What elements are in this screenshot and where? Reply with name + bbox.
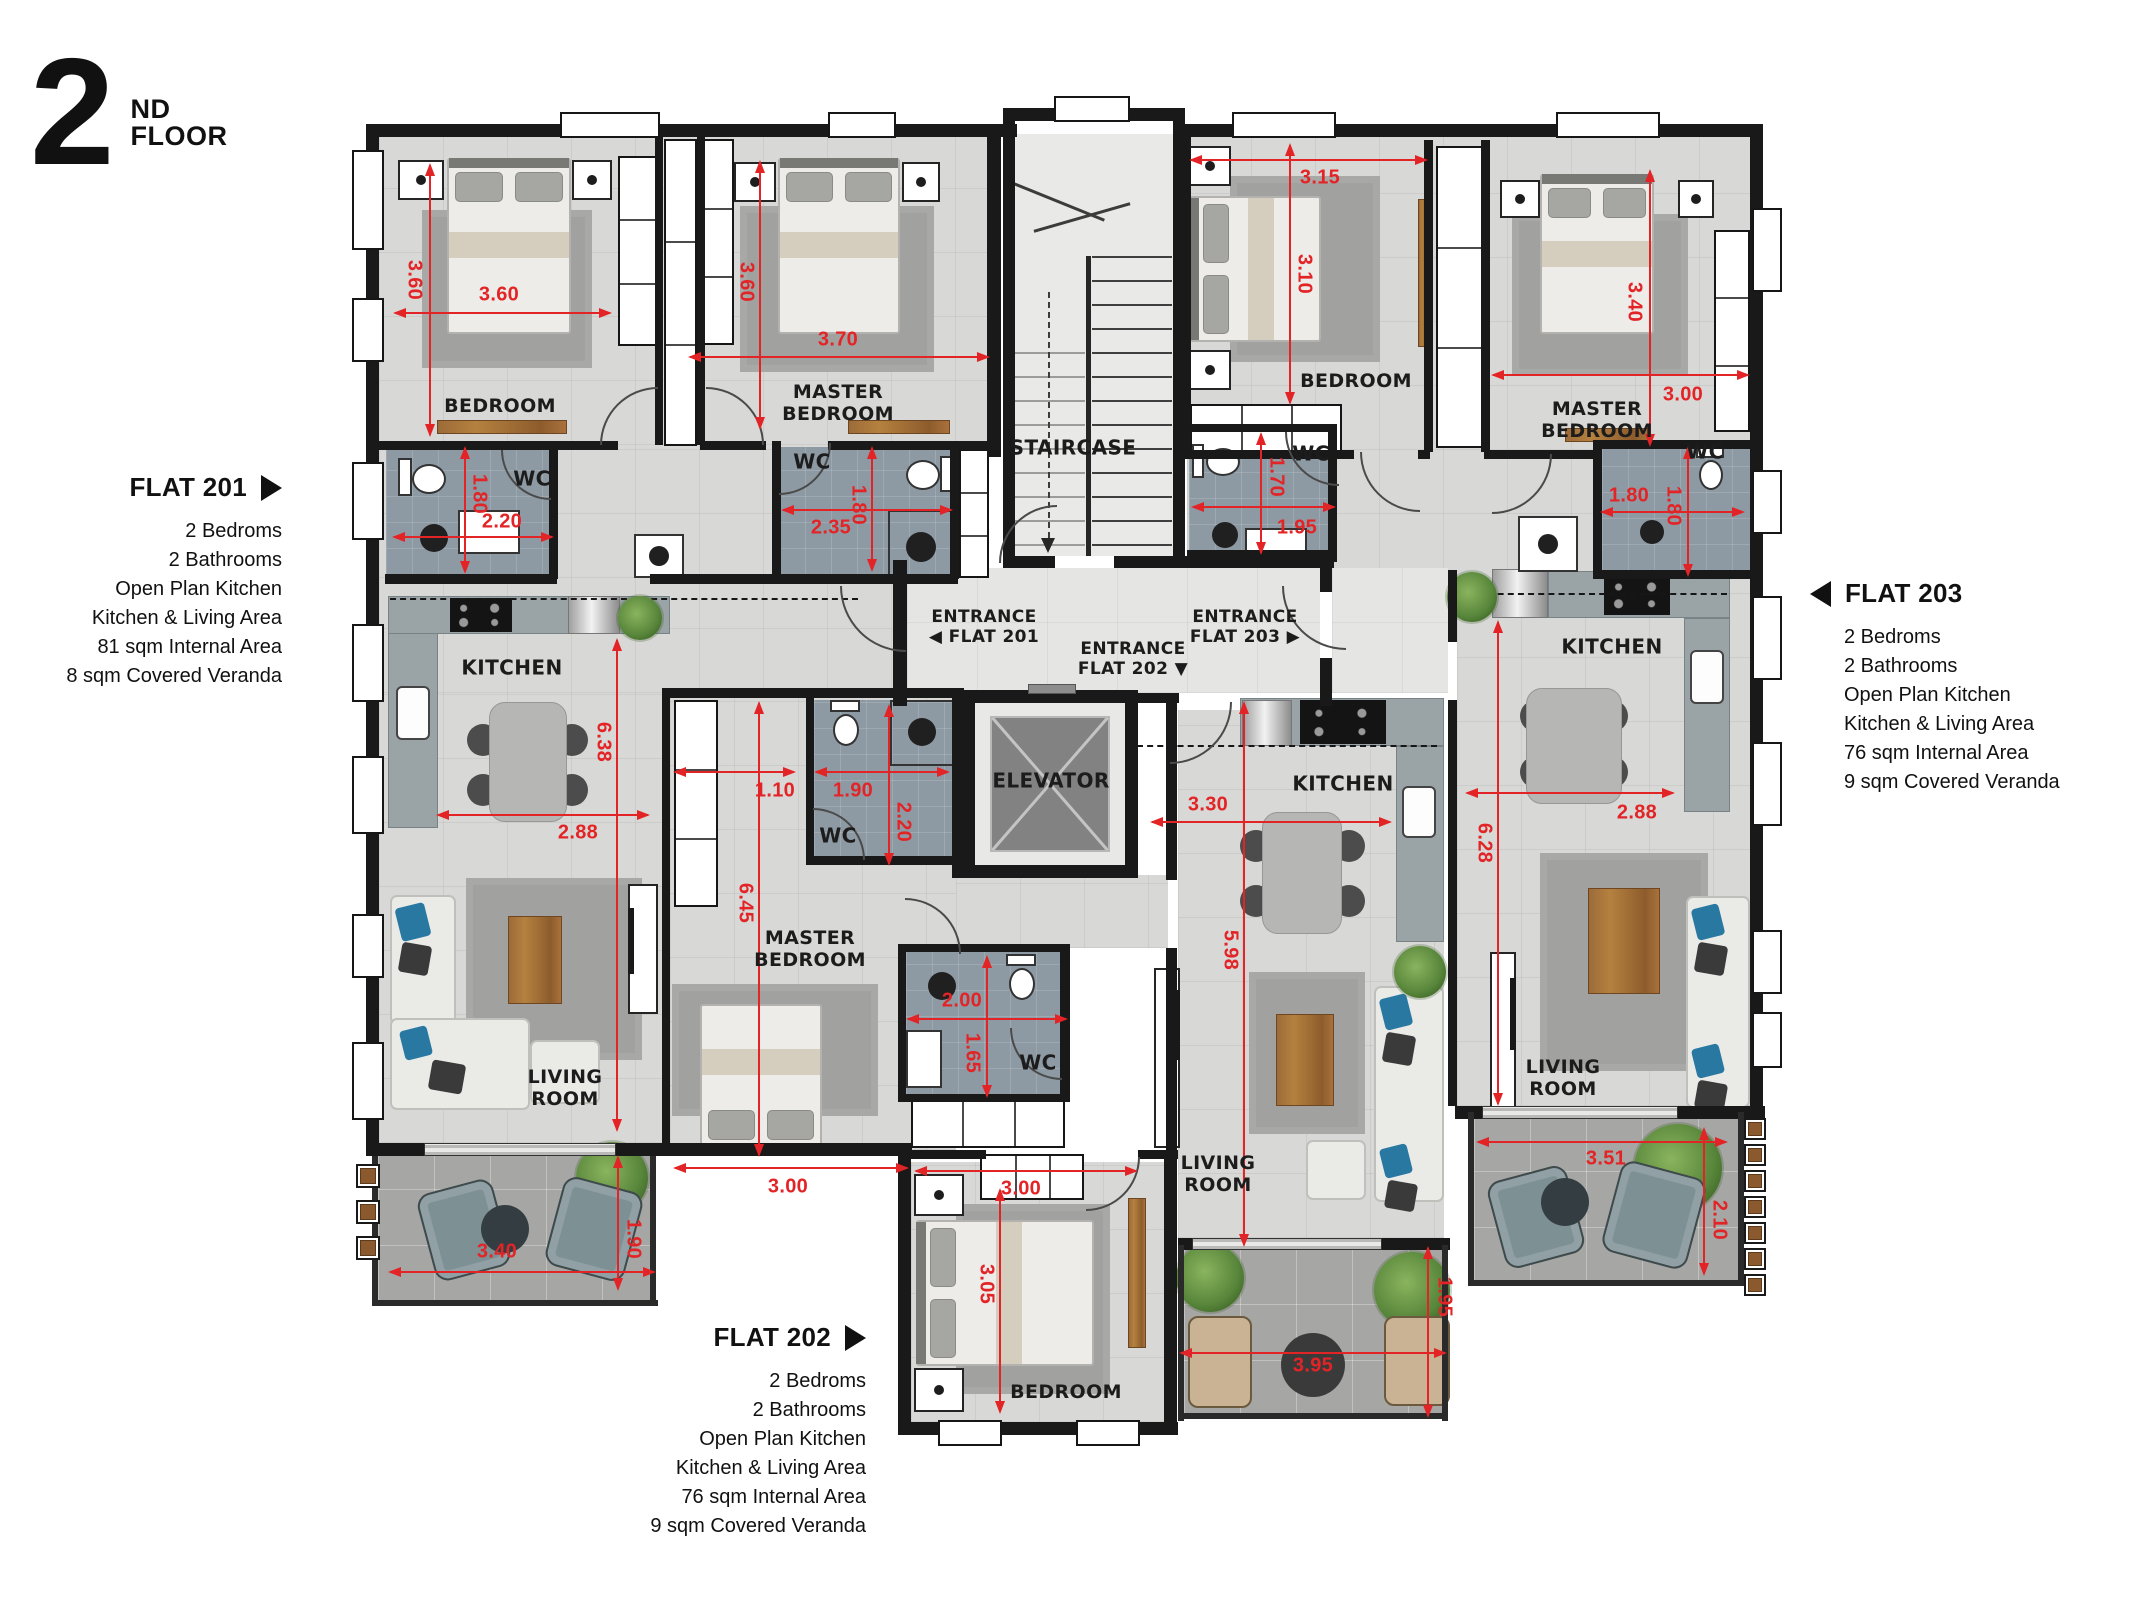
dimension-arrow-icon	[388, 1267, 401, 1277]
dimension-arrow-icon	[1715, 1137, 1728, 1147]
planter-soil	[360, 1168, 376, 1184]
room-label: LIVINGROOM	[1181, 1152, 1256, 1196]
bed-pillow	[708, 1110, 755, 1140]
nightstand-knob	[1205, 365, 1215, 375]
closet-divider	[702, 208, 732, 210]
kitchen-sink	[1690, 650, 1724, 704]
wall	[662, 688, 670, 1155]
wall	[828, 441, 989, 450]
room-label-line: FLAT 202 ▼	[1078, 659, 1188, 679]
dimension-label: 3.70	[818, 329, 858, 352]
nightstand-knob	[587, 175, 597, 185]
dimension-line	[390, 1271, 654, 1273]
wall	[1187, 424, 1335, 432]
dimension-line	[816, 771, 948, 773]
room-label: MASTERBEDROOM	[754, 927, 866, 971]
dimension-label: 1.70	[1265, 457, 1288, 497]
dimension-arrow-icon	[1191, 502, 1204, 512]
dimension-arrow-icon	[1285, 143, 1295, 156]
plant	[1176, 1244, 1244, 1312]
wall	[366, 441, 618, 450]
dimension-line	[395, 312, 610, 314]
nightstand-knob	[416, 175, 426, 185]
dimension-arrow-icon	[995, 1188, 1005, 1201]
wood-furniture	[437, 420, 567, 434]
veranda-wall	[1468, 1112, 1474, 1286]
wall	[898, 1150, 911, 1435]
veranda-wall	[1442, 1245, 1448, 1421]
dimension-arrow-icon	[884, 853, 894, 866]
dimension-arrow-icon	[460, 446, 470, 459]
closet-divider	[1716, 365, 1748, 367]
wall	[1166, 948, 1177, 1154]
wall	[385, 574, 557, 584]
dimension-label: 2.00	[942, 990, 982, 1013]
planter-soil	[1748, 1226, 1762, 1240]
dimension-line	[783, 509, 951, 511]
dimension-label: 3.05	[975, 1264, 998, 1304]
window	[352, 624, 384, 702]
wall	[650, 574, 772, 584]
dimension-arrow-icon	[1434, 1348, 1447, 1358]
dimension-line	[1152, 821, 1390, 823]
bed-pillow	[845, 172, 892, 202]
floorplan-page: 2 ND FLOOR FLAT 201 2 Bedroms2 Bathrooms…	[0, 0, 2134, 1600]
dimension-label: 3.60	[403, 260, 426, 300]
dimension-label: 2.20	[892, 802, 915, 842]
washing-machine-drum	[649, 546, 669, 566]
dimension-label: 3.40	[1623, 282, 1646, 322]
closet-divider	[1716, 297, 1748, 299]
dimension-arrow-icon	[1493, 620, 1503, 633]
wall	[1320, 658, 1332, 706]
room-label: MASTERBEDROOM	[1541, 398, 1653, 442]
sofa-cushion	[398, 942, 433, 977]
washing-machine-drum	[1538, 534, 1558, 554]
bathroom-fixture	[420, 524, 448, 552]
stove	[1604, 575, 1670, 615]
bathroom-fixture	[1640, 520, 1664, 544]
dimension-arrow-icon	[783, 767, 796, 777]
bed-blanket	[780, 232, 898, 258]
dimension-arrow-icon	[1683, 564, 1693, 577]
room-label-line: BEDROOM	[1300, 370, 1412, 392]
hall-floor	[1332, 568, 1448, 693]
dimension-arrow-icon	[1699, 1263, 1709, 1276]
room-label: STAIRCASE	[1010, 437, 1137, 460]
dimension-arrow-icon	[1239, 701, 1249, 714]
room-label-line: BEDROOM	[1010, 1381, 1122, 1403]
dimension-label: 2.20	[482, 511, 522, 534]
dimension-arrow-icon	[1465, 788, 1478, 798]
window	[1556, 112, 1660, 138]
dimension-arrow-icon	[906, 1014, 919, 1024]
dimension-label: 2.10	[1708, 1200, 1731, 1240]
wall	[952, 688, 962, 878]
bathroom-vanity	[906, 1030, 942, 1088]
dimension-line	[675, 1167, 907, 1169]
dimension-arrow-icon	[1737, 370, 1750, 380]
floor	[956, 875, 1168, 948]
closet	[700, 139, 734, 345]
closet	[674, 700, 718, 907]
sofa-cushion	[428, 1059, 467, 1094]
dimension-arrow-icon	[460, 561, 470, 574]
dimension-arrow-icon	[688, 352, 701, 362]
dimension-label: 1.10	[755, 780, 795, 803]
room-label-line: ROOM	[1526, 1078, 1601, 1100]
bed-pillow	[1548, 188, 1591, 218]
dimension-arrow-icon	[392, 532, 405, 542]
room-label: ENTRANCE◀ FLAT 201	[929, 607, 1039, 647]
bed-pillow	[1603, 188, 1646, 218]
kitchen-counter	[1396, 746, 1444, 942]
dimension-line	[464, 448, 466, 572]
dimension-line	[617, 1157, 619, 1289]
window	[1752, 470, 1782, 534]
window	[352, 462, 384, 540]
stove	[450, 598, 512, 632]
room-label-line: ◀ FLAT 201	[929, 627, 1039, 647]
room-label-line: ELEVATOR	[992, 770, 1109, 793]
room-label-line: STAIRCASE	[1010, 437, 1137, 460]
room-label: KITCHEN	[1561, 636, 1662, 659]
dimension-line	[1191, 159, 1426, 161]
dimension-label: 5.98	[1219, 930, 1242, 970]
room-label: KITCHEN	[1292, 773, 1393, 796]
dimension-arrow-icon	[612, 1119, 622, 1132]
window	[828, 112, 896, 138]
dimension-arrow-icon	[1239, 1234, 1249, 1247]
dimension-arrow-icon	[1423, 1246, 1433, 1259]
window	[352, 150, 384, 250]
veranda-wall	[1178, 1245, 1184, 1421]
elevator-door	[1028, 684, 1076, 694]
dimension-label: 3.00	[1663, 384, 1703, 407]
dimension-arrow-icon	[982, 955, 992, 968]
nightstand-knob	[1205, 161, 1215, 171]
planter-soil	[1748, 1252, 1762, 1266]
tv	[628, 908, 634, 974]
dimension-label: 3.00	[768, 1176, 808, 1199]
toilet-tank	[1006, 954, 1036, 966]
room-label-line: LIVING	[1181, 1152, 1256, 1174]
fridge	[568, 596, 620, 634]
room-label-line: KITCHEN	[461, 657, 562, 680]
dimension-label: 2.88	[558, 822, 598, 845]
dimension-label: 1.90	[622, 1219, 645, 1259]
stove	[1300, 700, 1386, 744]
toilet-bowl	[1009, 968, 1035, 1000]
sun-lounger	[1188, 1316, 1252, 1408]
dimension-arrow-icon	[613, 1278, 623, 1291]
room-label-line: MASTER	[754, 927, 866, 949]
planter-soil	[1748, 1122, 1762, 1136]
toilet-tank	[830, 700, 860, 712]
dimension-line	[1493, 374, 1748, 376]
room-label: WC	[1686, 441, 1724, 464]
room-label: KITCHEN	[461, 657, 562, 680]
wood-furniture	[1276, 1014, 1334, 1106]
bed-pillow	[786, 172, 833, 202]
sliding-door	[424, 1143, 616, 1156]
dimension-line	[1687, 448, 1689, 575]
dimension-arrow-icon	[1491, 370, 1504, 380]
dimension-arrow-icon	[1323, 502, 1336, 512]
bed-blanket	[702, 1049, 820, 1075]
dimension-arrow-icon	[1179, 1348, 1192, 1358]
sliding-door	[1192, 1238, 1382, 1250]
room-label: BEDROOM	[1300, 370, 1412, 392]
closet-divider	[620, 219, 660, 221]
dimension-line	[1193, 506, 1334, 508]
dining-table	[1526, 688, 1622, 804]
dining-table	[1262, 812, 1342, 934]
dimension-label: 6.38	[592, 722, 615, 762]
dimension-arrow-icon	[673, 767, 686, 777]
room-label-line: KITCHEN	[1561, 636, 1662, 659]
plant	[618, 596, 662, 640]
dimension-line	[438, 814, 648, 816]
bathroom-fixture	[906, 532, 936, 562]
dimension-line	[1260, 434, 1262, 553]
tv	[1510, 978, 1516, 1050]
window	[1752, 596, 1782, 680]
dimension-arrow-icon	[982, 1085, 992, 1098]
dimension-arrow-icon	[425, 424, 435, 437]
dimension-label: 3.51	[1586, 1148, 1626, 1171]
open-plan-divider	[1457, 593, 1727, 595]
dimension-arrow-icon	[1256, 542, 1266, 555]
wall	[666, 1146, 912, 1156]
veranda-wall	[650, 1156, 656, 1306]
bed-headboard	[449, 158, 569, 168]
room-label: MASTERBEDROOM	[782, 381, 894, 425]
dimension-label: 1.95	[1277, 517, 1317, 540]
dimension-arrow-icon	[814, 767, 827, 777]
closet-divider	[676, 838, 716, 840]
toilet-bowl	[833, 714, 859, 746]
dimension-line	[986, 957, 988, 1096]
planter-soil	[1748, 1278, 1762, 1292]
stair-treads	[1092, 256, 1172, 556]
window	[1076, 1420, 1140, 1446]
dimension-arrow-icon	[754, 701, 764, 714]
window	[560, 112, 660, 138]
bed-headboard	[780, 158, 898, 168]
dimension-arrow-icon	[977, 352, 990, 362]
bed-pillow	[767, 1110, 814, 1140]
dimension-line	[1289, 145, 1291, 403]
bed-pillow	[515, 172, 563, 202]
dimension-arrow-icon	[1423, 1405, 1433, 1418]
dimension-arrow-icon	[1055, 1014, 1068, 1024]
room-label-line: ROOM	[528, 1088, 603, 1110]
dimension-label: 3.15	[1300, 167, 1340, 190]
dimension-arrow-icon	[1285, 392, 1295, 405]
bed-headboard	[916, 1222, 926, 1364]
closet-divider	[1438, 347, 1482, 349]
dimension-line	[1703, 1129, 1705, 1274]
dimension-line	[1478, 1141, 1726, 1143]
wall	[1003, 121, 1015, 568]
dimension-arrow-icon	[867, 559, 877, 572]
room-label-line: LIVING	[1526, 1056, 1601, 1078]
dimension-line	[999, 1190, 1001, 1412]
window	[352, 756, 384, 834]
dimension-label: 1.80	[1662, 486, 1685, 526]
closet-divider	[961, 535, 987, 537]
dimension-line	[759, 162, 761, 428]
room-label-line: BEDROOM	[1541, 420, 1653, 442]
nightstand-knob	[1691, 194, 1701, 204]
dimension-arrow-icon	[1732, 507, 1745, 517]
planter-soil	[1748, 1200, 1762, 1214]
dimension-arrow-icon	[643, 1267, 656, 1277]
closet-divider	[666, 241, 695, 243]
window	[1054, 96, 1130, 122]
dimension-line	[1467, 792, 1673, 794]
fridge	[1242, 700, 1292, 746]
open-plan-divider	[390, 598, 858, 600]
dimension-arrow-icon	[781, 505, 794, 515]
dimension-line	[888, 706, 890, 864]
veranda-wall	[1468, 1280, 1742, 1286]
bed-blanket	[1248, 198, 1274, 340]
planter-soil	[360, 1240, 376, 1256]
closet-divider	[620, 283, 660, 285]
toilet-bowl	[412, 464, 446, 494]
dining-table	[489, 702, 567, 822]
stair-stringer	[1086, 256, 1091, 556]
dimension-label: 1.80	[468, 474, 491, 514]
closet-divider	[1438, 247, 1482, 249]
room-label: WC	[793, 451, 831, 474]
dimension-arrow-icon	[1189, 155, 1202, 165]
dimension-label: 3.00	[1001, 1178, 1041, 1201]
window	[1752, 930, 1782, 994]
room-label: BEDROOM	[1010, 1381, 1122, 1403]
bed-pillow	[930, 1228, 956, 1287]
room-label: WC	[513, 468, 551, 491]
room-label-line: BEDROOM	[754, 949, 866, 971]
bathroom-fixture	[908, 718, 936, 746]
wood-furniture	[508, 916, 562, 1004]
room-label-line: WC	[1292, 443, 1330, 466]
window	[352, 914, 384, 978]
room-label-line: WC	[513, 468, 551, 491]
dimension-arrow-icon	[673, 1163, 686, 1173]
wood-furniture	[1128, 1198, 1146, 1348]
room-label-line: MASTER	[1541, 398, 1653, 420]
planter-soil	[1748, 1174, 1762, 1188]
wall	[987, 137, 1001, 457]
dimension-label: 3.40	[477, 1241, 517, 1264]
dimension-label: 6.45	[734, 883, 757, 923]
room-label: LIVINGROOM	[1526, 1056, 1601, 1100]
dimension-arrow-icon	[541, 532, 554, 542]
room-label: WC	[819, 825, 857, 848]
wall	[898, 1150, 986, 1159]
closet-divider	[666, 344, 695, 346]
dimension-arrow-icon	[1476, 1137, 1489, 1147]
dimension-arrow-icon	[1662, 788, 1675, 798]
wall	[697, 137, 705, 445]
bed-pillow	[1203, 275, 1229, 334]
dimension-arrow-icon	[612, 638, 622, 651]
dimension-arrow-icon	[1125, 1166, 1138, 1176]
dimension-arrow-icon	[1256, 432, 1266, 445]
bed-pillow	[1203, 204, 1229, 263]
wall	[772, 574, 958, 584]
room-label-line: ENTRANCE	[929, 607, 1039, 627]
room-label: BEDROOM	[444, 395, 556, 417]
planter-soil	[360, 1204, 376, 1220]
dimension-arrow-icon	[436, 810, 449, 820]
dimension-label: 3.95	[1293, 1355, 1333, 1378]
dimension-arrow-icon	[755, 417, 765, 430]
wall	[1448, 700, 1457, 1106]
dimension-arrow-icon	[755, 160, 765, 173]
dimension-arrow-icon	[1645, 169, 1655, 182]
room-label-line: BEDROOM	[444, 395, 556, 417]
closet	[1714, 230, 1750, 432]
nightstand-knob	[916, 177, 926, 187]
bed-pillow	[930, 1299, 956, 1358]
toilet-bowl	[906, 460, 940, 490]
dimension-label: 1.80	[1609, 485, 1649, 508]
dimension-arrow-icon	[884, 704, 894, 717]
dimension-label: 3.60	[479, 284, 519, 307]
toilet-tank	[398, 458, 412, 496]
dimension-arrow-icon	[914, 1166, 927, 1176]
room-label: WC	[1292, 443, 1330, 466]
dimension-label: 6.28	[1473, 823, 1496, 863]
toilet-bowl	[1699, 460, 1723, 490]
sofa	[1306, 1140, 1366, 1200]
dimension-label: 3.10	[1293, 254, 1316, 294]
window	[352, 298, 384, 362]
dimension-line	[394, 536, 552, 538]
wall	[1448, 570, 1457, 642]
room-label-line: WC	[793, 451, 831, 474]
wall	[1481, 140, 1490, 452]
veranda-wall	[372, 1300, 658, 1306]
nightstand-knob	[934, 1190, 944, 1200]
room-label-line: KITCHEN	[1292, 773, 1393, 796]
nightstand-knob	[1515, 194, 1525, 204]
dimension-arrow-icon	[940, 505, 953, 515]
closet-divider	[1049, 1156, 1051, 1198]
room-label-line: ENTRANCE	[1190, 607, 1300, 627]
sliding-door	[1482, 1106, 1678, 1119]
room-label-line: WC	[1686, 441, 1724, 464]
dimension-line	[690, 356, 988, 358]
nightstand-knob	[934, 1385, 944, 1395]
veranda-wall	[1178, 1413, 1448, 1419]
bathroom-fixture	[1212, 522, 1238, 548]
room-label-line: BEDROOM	[782, 403, 894, 425]
closet-divider	[1014, 1100, 1016, 1146]
dimension-arrow-icon	[393, 308, 406, 318]
dimension-label: 1.65	[961, 1033, 984, 1073]
window	[1752, 1012, 1782, 1068]
closet-divider	[961, 492, 987, 494]
dimension-arrow-icon	[1150, 817, 1163, 827]
closet-divider	[702, 276, 732, 278]
dimension-label: 3.30	[1188, 794, 1228, 817]
dimension-line	[916, 1170, 1136, 1172]
